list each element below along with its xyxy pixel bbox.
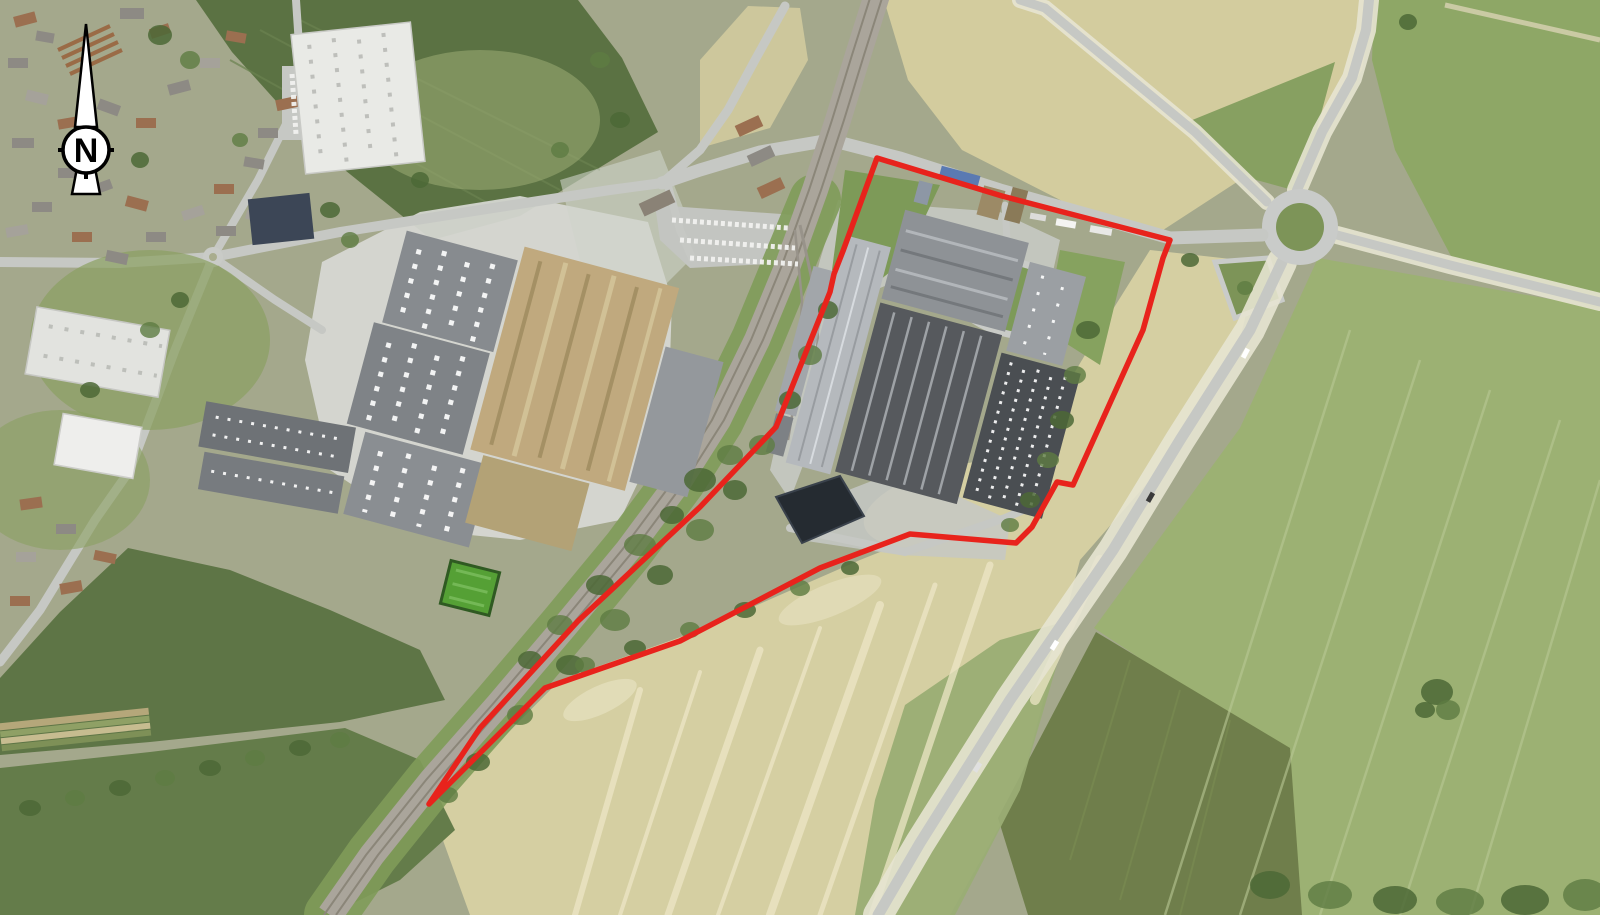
tree	[80, 382, 100, 398]
house	[214, 184, 234, 194]
field-darkgreen-sw1	[0, 548, 445, 755]
house	[10, 596, 30, 606]
tree	[1399, 14, 1417, 30]
truck	[1030, 213, 1047, 222]
tree	[1037, 452, 1059, 468]
house	[125, 195, 149, 211]
tree	[131, 152, 149, 168]
tree	[330, 732, 350, 748]
house	[12, 138, 34, 148]
tree	[109, 780, 131, 796]
tree	[411, 172, 429, 188]
house	[216, 226, 236, 236]
tree	[723, 480, 747, 500]
house	[136, 118, 156, 128]
tree	[1373, 886, 1417, 914]
sports-field	[440, 561, 499, 616]
tree	[65, 790, 85, 806]
house	[72, 232, 92, 242]
aerial-map: N	[0, 0, 1600, 915]
tree	[841, 561, 859, 575]
tree	[1001, 518, 1019, 532]
warehouse-top	[291, 22, 425, 174]
house	[16, 552, 36, 562]
tree	[647, 565, 673, 585]
field-green-topright	[1372, 0, 1600, 310]
tree	[155, 770, 175, 786]
aerial-site-plan: N	[0, 0, 1600, 915]
tree	[684, 468, 716, 492]
tree	[245, 750, 265, 766]
truck	[1055, 218, 1076, 228]
tree	[199, 760, 221, 776]
tree	[1250, 871, 1290, 899]
house	[181, 205, 205, 221]
tree	[180, 51, 200, 69]
house	[243, 156, 264, 169]
north-label: N	[74, 132, 99, 170]
tree	[1020, 492, 1040, 508]
tree	[610, 112, 630, 128]
house	[757, 177, 786, 199]
house	[59, 580, 83, 595]
tree	[1308, 881, 1352, 909]
tree	[1076, 321, 1100, 339]
tree	[140, 322, 160, 338]
house	[258, 128, 278, 138]
navy-building	[248, 193, 314, 245]
house	[13, 11, 37, 27]
tree	[1237, 281, 1253, 295]
house	[146, 232, 166, 242]
house	[200, 58, 220, 68]
house	[120, 8, 144, 19]
tree	[1050, 411, 1074, 429]
tree	[341, 232, 359, 248]
tree	[660, 506, 684, 524]
house	[167, 79, 191, 95]
tree	[551, 142, 569, 158]
tree	[289, 740, 311, 756]
roundabout-island	[1276, 203, 1324, 251]
house	[5, 224, 28, 238]
house	[32, 202, 52, 212]
tree	[1501, 885, 1549, 915]
house	[56, 524, 76, 534]
house	[93, 550, 117, 564]
house	[25, 89, 49, 105]
town-roundabout-island	[209, 253, 217, 261]
tree	[1415, 702, 1435, 718]
tree	[1064, 366, 1086, 384]
house	[8, 58, 28, 68]
tree	[600, 609, 630, 631]
tree	[686, 519, 714, 541]
tree	[232, 133, 248, 147]
tree	[171, 292, 189, 308]
tree	[148, 25, 172, 45]
house	[35, 31, 54, 44]
tree	[1181, 253, 1199, 267]
tree	[19, 800, 41, 816]
tree	[1436, 700, 1460, 720]
tree	[320, 202, 340, 218]
house	[97, 99, 121, 117]
tree	[590, 52, 610, 68]
tree	[1436, 888, 1484, 915]
